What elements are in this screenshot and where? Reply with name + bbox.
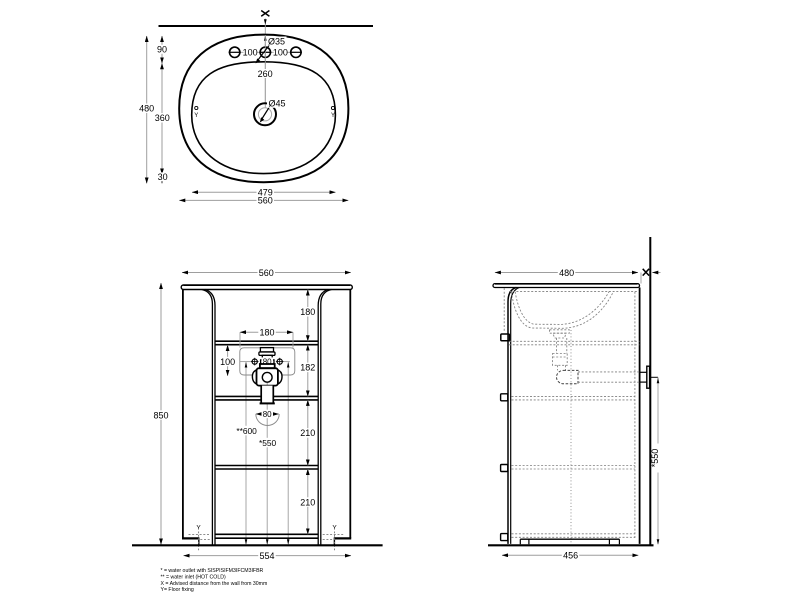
svg-text:480: 480: [139, 104, 154, 114]
svg-text:Ø45: Ø45: [268, 99, 285, 109]
svg-text:554: 554: [259, 551, 274, 561]
svg-text:850: 850: [153, 410, 168, 420]
svg-text:80: 80: [263, 410, 272, 419]
svg-text:*550: *550: [259, 438, 277, 448]
svg-text:560: 560: [258, 196, 273, 206]
svg-text:*550: *550: [650, 449, 660, 468]
svg-text:456: 456: [563, 551, 578, 561]
svg-text:360: 360: [155, 113, 170, 123]
svg-text:Y: Y: [331, 113, 335, 119]
svg-text:Y: Y: [332, 525, 337, 532]
svg-text:100: 100: [220, 357, 235, 367]
svg-text:30: 30: [158, 172, 168, 182]
svg-text:182: 182: [300, 363, 315, 373]
svg-text:180: 180: [300, 307, 315, 317]
svg-text:Ø35: Ø35: [268, 36, 285, 46]
svg-text:* = water outlet with SISPISIF: * = water outlet with SISPISIFM3IFCM3IFB…: [161, 568, 264, 574]
svg-text:X = Advised distance from the: X = Advised distance from the wall from …: [161, 581, 268, 587]
svg-text:Y: Y: [194, 113, 198, 119]
svg-text:180: 180: [259, 328, 274, 338]
svg-text:Y: Y: [196, 525, 201, 532]
svg-text:Y= Floor fixing: Y= Floor fixing: [161, 587, 194, 593]
svg-text:210: 210: [300, 497, 315, 507]
svg-text:260: 260: [258, 69, 273, 79]
svg-text:80: 80: [263, 358, 272, 367]
svg-text:** = water inlet (HOT COLD): ** = water inlet (HOT COLD): [161, 574, 226, 580]
svg-text:**600: **600: [236, 426, 257, 436]
svg-text:100: 100: [243, 48, 258, 58]
svg-text:100: 100: [273, 48, 288, 58]
svg-text:210: 210: [300, 428, 315, 438]
svg-text:480: 480: [559, 268, 574, 278]
svg-text:90: 90: [157, 45, 167, 55]
svg-text:560: 560: [259, 268, 274, 278]
